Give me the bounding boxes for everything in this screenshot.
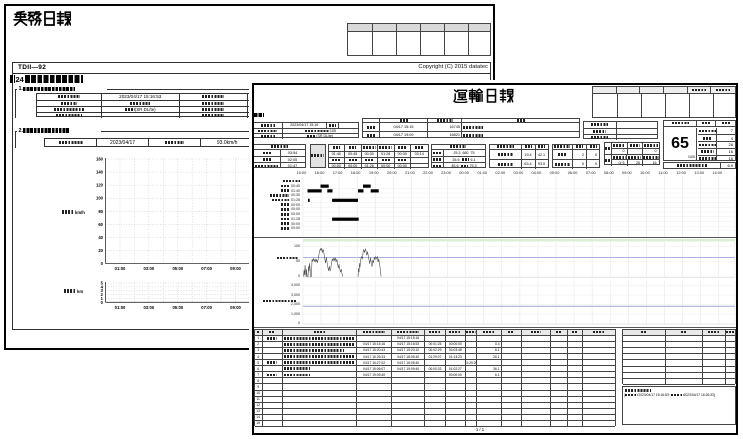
svg-text:07:00: 07:00: [201, 266, 212, 271]
svg-text:07:00: 07:00: [201, 305, 212, 310]
svg-text:40: 40: [98, 235, 103, 240]
svg-text:100: 100: [96, 196, 104, 201]
svg-text:03:00: 03:00: [143, 305, 154, 310]
svg-text:05:00: 05:00: [172, 305, 183, 310]
svg-text:160: 160: [96, 157, 104, 162]
svg-text:120: 120: [96, 183, 104, 188]
svg-text:0: 0: [101, 300, 104, 305]
svg-text:05:00: 05:00: [172, 266, 183, 271]
svg-text:09:00: 09:00: [230, 266, 241, 271]
svg-text:0: 0: [101, 261, 104, 266]
svg-text:03:00: 03:00: [143, 266, 154, 271]
svg-text:60: 60: [98, 222, 103, 227]
svg-text:20: 20: [98, 248, 103, 253]
svg-text:01:00: 01:00: [115, 305, 126, 310]
svg-text:09:00: 09:00: [230, 305, 241, 310]
svg-text:01:00: 01:00: [115, 266, 126, 271]
svg-text:140: 140: [96, 170, 104, 175]
